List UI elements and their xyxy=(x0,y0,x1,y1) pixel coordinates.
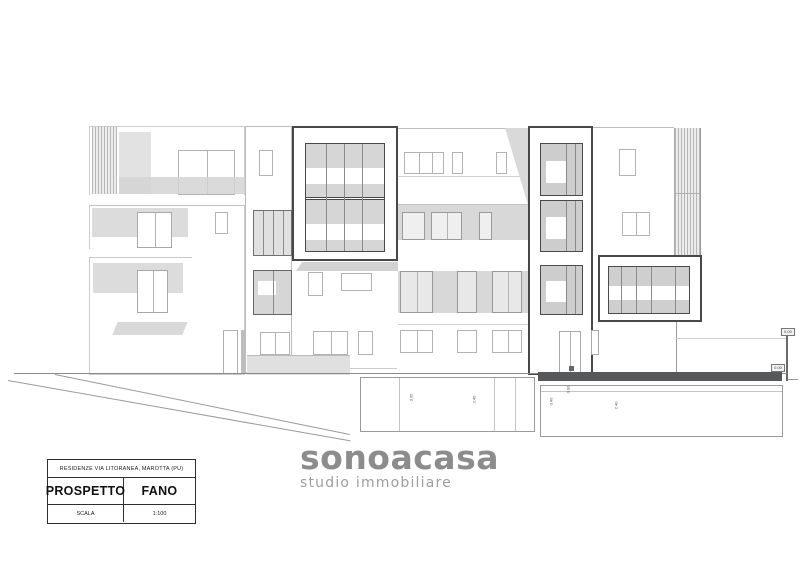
elevation-sheet: 0.00 0.00 3.05 2.40 0.40 2.40 0.00 RESID… xyxy=(0,0,800,565)
left-balcony-slab-1 xyxy=(89,195,245,206)
window-mullion xyxy=(447,213,448,239)
dimension-label: 0.40 xyxy=(549,394,554,410)
dimension-label: 2.40 xyxy=(614,398,619,414)
front-planter-wall xyxy=(247,355,350,375)
basement-divider xyxy=(494,378,495,431)
basement-right-outline xyxy=(540,385,783,437)
right-ground-stub xyxy=(788,379,798,380)
center-box-slab-shadow xyxy=(296,262,398,271)
window-mullion xyxy=(508,272,509,312)
agency-logo: sonoacasa studio immobiliare xyxy=(300,441,530,491)
window-mullion xyxy=(273,211,274,255)
mid-top-window-2 xyxy=(452,152,463,174)
pier-balcony-window-f1 xyxy=(253,270,292,315)
window-mullion xyxy=(331,332,332,354)
title-block: RESIDENZE VIA LITORANEA, MAROTTA (PU) PR… xyxy=(47,459,196,524)
mid-ground-window-2 xyxy=(457,330,477,353)
left-balcony-slab-2 xyxy=(89,249,192,258)
window-mullion xyxy=(344,144,345,251)
glass-reflection xyxy=(546,281,566,302)
left-floor2-small-window xyxy=(215,212,228,234)
level-marker-deck: 0.00 xyxy=(771,364,785,372)
under-box-small-window xyxy=(308,272,323,296)
level-tick xyxy=(569,366,574,371)
window-mullion xyxy=(417,272,418,312)
louver-divider xyxy=(675,193,700,194)
level-label-door: 0.00 xyxy=(566,382,571,398)
window-mullion xyxy=(326,144,327,251)
floor-divider xyxy=(306,197,384,200)
right-louver-hatch xyxy=(674,128,701,255)
mid-ground-window-3 xyxy=(492,330,522,353)
left-louver-hatch xyxy=(92,127,117,194)
window-mullion xyxy=(275,333,276,354)
window-mullion xyxy=(621,267,622,313)
window-mullion xyxy=(566,144,567,195)
mid-top-window-3 xyxy=(496,152,507,174)
window-mullion xyxy=(566,266,567,314)
ramp-line-lower xyxy=(8,380,351,441)
mid-f1-window-1 xyxy=(400,271,433,313)
window-mullion xyxy=(566,201,567,251)
window-mullion xyxy=(419,153,420,173)
window-mullion xyxy=(651,267,652,313)
glass-reflection xyxy=(306,168,384,184)
left-ground-door xyxy=(223,330,238,374)
mid-top-window-1 xyxy=(404,152,444,174)
basement-left-outline xyxy=(360,377,535,432)
basement-divider xyxy=(515,378,516,431)
location-cell: FANO xyxy=(124,478,195,504)
dimension-label: 2.40 xyxy=(472,392,477,408)
mid-f2-window-2 xyxy=(431,212,462,240)
right-narrow-window xyxy=(591,330,599,355)
left-balcony-underside-shadow xyxy=(112,322,187,335)
glass-reflection xyxy=(546,217,566,239)
right-box-window-frame xyxy=(608,266,690,314)
window-mullion xyxy=(153,271,154,312)
mid-parapet xyxy=(398,176,528,205)
right-small-window-top xyxy=(619,149,636,176)
ground-window-pair-2 xyxy=(313,331,348,355)
window-mullion xyxy=(508,331,509,352)
tower-window-top xyxy=(540,143,583,196)
pier-small-window xyxy=(259,150,273,176)
glass-reflection xyxy=(306,224,384,240)
drawing-type-cell: PROSPETTO xyxy=(48,478,124,504)
right-small-window-mid xyxy=(622,212,650,236)
window-mullion xyxy=(675,267,676,313)
logo-name: sonoacasa xyxy=(300,441,530,474)
left-floor1-window xyxy=(137,270,168,313)
logo-tagline: studio immobiliare xyxy=(300,476,530,491)
window-mullion xyxy=(417,331,418,352)
front-step-line xyxy=(350,368,397,369)
right-wall-edge xyxy=(676,322,677,373)
window-mullion xyxy=(263,211,264,255)
basement-divider xyxy=(399,378,400,431)
title-block-scale-row: SCALA 1:100 xyxy=(48,505,195,522)
scale-value-cell: 1:100 xyxy=(124,505,195,522)
window-mullion xyxy=(283,211,284,255)
title-block-project: RESIDENZE VIA LITORANEA, MAROTTA (PU) xyxy=(48,460,195,478)
window-mullion xyxy=(432,153,433,173)
window-mullion xyxy=(155,213,156,247)
center-box-window-frame xyxy=(305,143,385,252)
mid-f1-window-3 xyxy=(492,271,522,313)
under-box-window xyxy=(341,273,372,291)
window-mullion xyxy=(636,213,637,235)
tower-window-bottom xyxy=(540,265,583,315)
window-mullion xyxy=(575,201,576,251)
ground-window-3 xyxy=(358,331,373,355)
window-mullion xyxy=(362,144,363,251)
ground-window-pair-1 xyxy=(260,332,290,355)
deck-bar xyxy=(538,372,782,381)
left-floor2-window xyxy=(137,212,172,248)
window-mullion xyxy=(636,267,637,313)
mid-ground-window-1 xyxy=(400,330,433,353)
title-block-main-row: PROSPETTO FANO xyxy=(48,478,195,505)
window-mullion xyxy=(273,271,274,314)
mid-f2-window-1 xyxy=(402,212,425,240)
tower-window-middle xyxy=(540,200,583,252)
ramp-line-upper xyxy=(55,374,350,435)
basement-inner-line xyxy=(541,391,782,392)
right-fence-line xyxy=(676,338,787,339)
mid-slab xyxy=(398,313,528,325)
left-penthouse-railing-band xyxy=(119,177,245,194)
mid-f1-window-2 xyxy=(457,271,477,313)
glass-reflection xyxy=(546,161,566,183)
pier-balcony-window-f2 xyxy=(253,210,292,256)
level-marker-top: 0.00 xyxy=(781,328,795,336)
window-mullion xyxy=(575,144,576,195)
dimension-label: 3.05 xyxy=(409,390,414,406)
mid-f2-window-3 xyxy=(479,212,492,240)
scale-label-cell: SCALA xyxy=(48,505,124,522)
window-mullion xyxy=(575,266,576,314)
